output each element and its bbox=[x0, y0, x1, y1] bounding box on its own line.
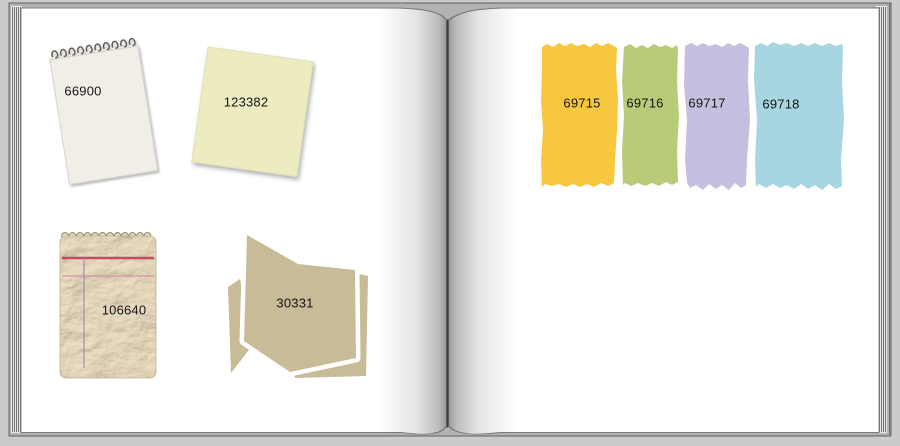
scrap-item-textured-notepad[interactable]: 106640 bbox=[54, 226, 170, 391]
scrap-item-torn-strip-blue[interactable]: 69718 bbox=[753, 40, 847, 194]
strip-number-label: 69716 bbox=[626, 96, 663, 111]
page-stack-left bbox=[11, 6, 22, 433]
torn-strip-shape bbox=[754, 42, 844, 190]
paper-sheet bbox=[192, 47, 313, 177]
torn-strip-shape bbox=[684, 43, 750, 190]
scrap-item-torn-strip-purple[interactable]: 69717 bbox=[681, 40, 753, 194]
strip-number-label: 69715 bbox=[563, 96, 600, 111]
scrap-item-torn-strip-yellow[interactable]: 69715 bbox=[540, 40, 620, 190]
item-number-label: 106640 bbox=[102, 303, 147, 318]
scrap-item-paper-stack[interactable]: 30331 bbox=[220, 226, 375, 386]
spine-shadow-right bbox=[449, 8, 518, 433]
torn-strip-shape bbox=[541, 43, 618, 187]
scrap-item-cream-notepad[interactable]: 66900 bbox=[34, 28, 166, 198]
strip-number-label: 69717 bbox=[688, 96, 725, 111]
notepad-sheet bbox=[50, 46, 158, 184]
scrap-item-torn-strip-green[interactable]: 69716 bbox=[621, 41, 681, 189]
scrap-item-yellow-paper[interactable]: 123382 bbox=[190, 38, 330, 188]
photobook-canvas: 66900 123382 bbox=[0, 0, 900, 446]
strip-number-label: 69718 bbox=[762, 97, 799, 112]
spine-shadow-left bbox=[378, 8, 447, 433]
item-number-label: 123382 bbox=[224, 95, 269, 110]
item-number-label: 30331 bbox=[276, 296, 313, 311]
item-number-label: 66900 bbox=[64, 84, 101, 99]
torn-strip-shape bbox=[622, 44, 679, 186]
